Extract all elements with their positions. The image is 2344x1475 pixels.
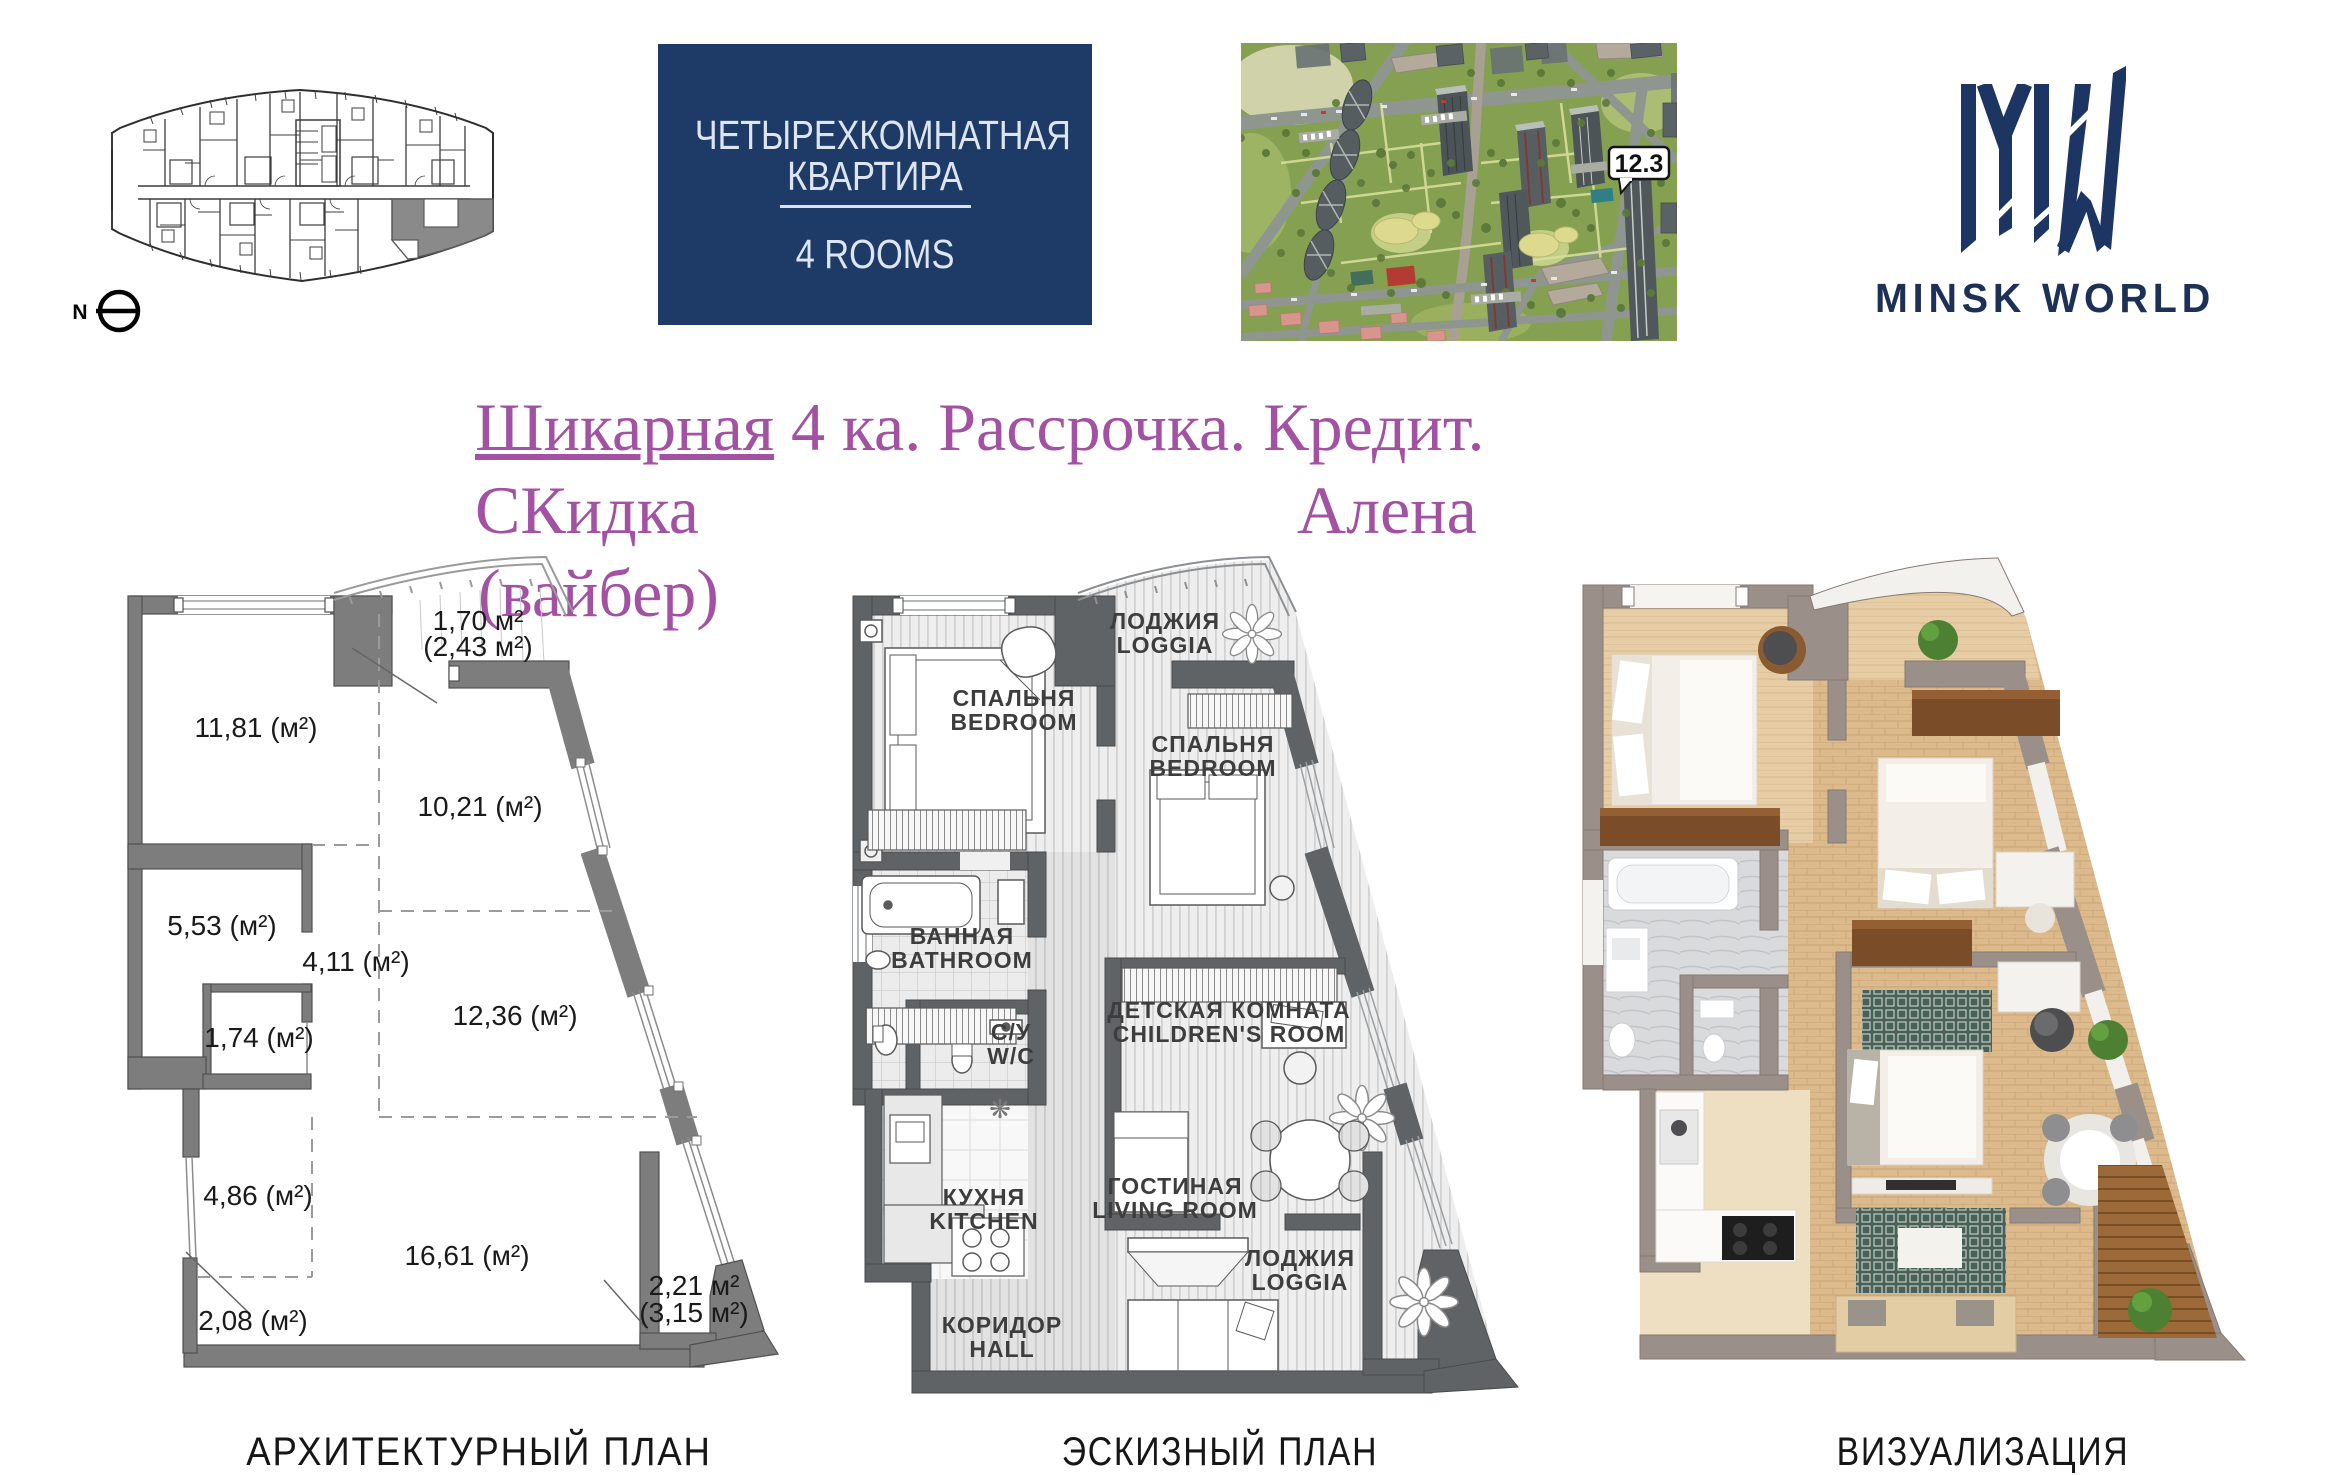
- svg-text:N: N: [72, 301, 87, 324]
- svg-text:LIVING ROOM: LIVING ROOM: [1092, 1197, 1258, 1223]
- svg-text:10,21 (м²): 10,21 (м²): [417, 791, 542, 822]
- svg-text:4,86 (м²): 4,86 (м²): [203, 1180, 313, 1211]
- svg-text:ЛОДЖИЯ: ЛОДЖИЯ: [1110, 608, 1220, 634]
- svg-text:ГОСТИНАЯ: ГОСТИНАЯ: [1108, 1173, 1243, 1199]
- svg-text:1,74 (м²): 1,74 (м²): [204, 1022, 314, 1053]
- svg-text:BEDROOM: BEDROOM: [1149, 755, 1276, 781]
- svg-text:11,81 (м²): 11,81 (м²): [195, 712, 318, 743]
- svg-text:(3,15 м²): (3,15 м²): [639, 1297, 749, 1328]
- svg-text:12.3: 12.3: [1615, 150, 1664, 178]
- svg-text:LOGGIA: LOGGIA: [1252, 1269, 1349, 1295]
- svg-text:(2,43 м²): (2,43 м²): [423, 631, 533, 662]
- svg-text:16,61 (м²): 16,61 (м²): [404, 1240, 529, 1271]
- svg-text:LOGGIA: LOGGIA: [1117, 632, 1214, 658]
- svg-text:BEDROOM: BEDROOM: [950, 709, 1077, 735]
- svg-text:ДЕТСКАЯ КОМНАТА: ДЕТСКАЯ КОМНАТА: [1107, 997, 1350, 1023]
- svg-text:CHILDREN'S ROOM: CHILDREN'S ROOM: [1113, 1021, 1346, 1047]
- svg-text:HALL: HALL: [969, 1336, 1034, 1362]
- svg-text:4,11 (м²): 4,11 (м²): [302, 946, 409, 977]
- svg-text:СПАЛЬНЯ: СПАЛЬНЯ: [1152, 731, 1275, 757]
- svg-text:W/C: W/C: [987, 1043, 1035, 1069]
- svg-text:KITCHEN: KITCHEN: [929, 1208, 1038, 1234]
- svg-text:5,53 (м²): 5,53 (м²): [167, 910, 277, 941]
- svg-text:КОРИДОР: КОРИДОР: [942, 1312, 1062, 1338]
- svg-text:BATHROOM: BATHROOM: [891, 947, 1033, 973]
- svg-text:ЛОДЖИЯ: ЛОДЖИЯ: [1245, 1245, 1355, 1271]
- svg-text:С/У: С/У: [991, 1019, 1031, 1045]
- svg-text:КУХНЯ: КУХНЯ: [943, 1184, 1025, 1210]
- svg-text:MINSK WORLD: MINSK WORLD: [1875, 275, 2215, 321]
- svg-text:❋: ❋: [989, 1094, 1011, 1124]
- svg-text:ВАННАЯ: ВАННАЯ: [910, 923, 1014, 949]
- svg-text:2,08 (м²): 2,08 (м²): [198, 1305, 308, 1336]
- svg-text:СПАЛЬНЯ: СПАЛЬНЯ: [953, 685, 1076, 711]
- svg-text:12,36 (м²): 12,36 (м²): [452, 1000, 577, 1031]
